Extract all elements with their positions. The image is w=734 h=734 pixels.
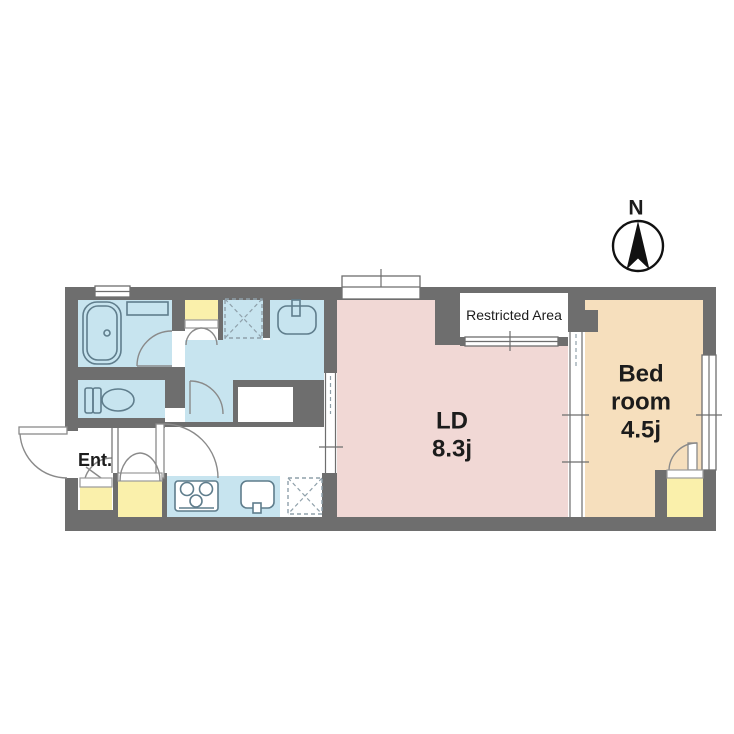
wall-stub-closet-laundry xyxy=(218,287,223,340)
bedroom-label-line2: room xyxy=(611,389,671,416)
floor-plan-drawing: Ent. Restricted Area LD 8.3j Bed room 4.… xyxy=(0,0,734,734)
wall-ld-bedroom-top xyxy=(568,287,585,332)
wall-bedroom-step xyxy=(585,310,598,332)
stove xyxy=(175,481,218,511)
hall-upper-closet-front xyxy=(185,320,218,328)
wall-bottom-entry-step xyxy=(65,510,118,519)
wall-ra-bottom-right xyxy=(558,337,568,346)
wall-pocket-left xyxy=(233,382,238,422)
wall-pocket-block xyxy=(293,387,324,422)
wall-pocket-top xyxy=(233,380,324,387)
wall-below-toilet xyxy=(65,418,165,428)
hallway-door-leaf xyxy=(156,424,164,478)
hallway-door-swing xyxy=(164,424,218,478)
wall-stub-laundry-basin xyxy=(263,287,270,338)
compass-north-label: N xyxy=(628,197,643,220)
compass: N xyxy=(613,197,663,272)
wall-washroom-front-edge xyxy=(165,422,325,427)
wall-kitchen-left xyxy=(162,473,167,517)
shoe-cabinet xyxy=(80,487,112,510)
wall-bottom xyxy=(65,517,716,531)
wall-ra-top-edge xyxy=(460,287,568,293)
entrance-door-opening xyxy=(63,431,79,478)
entrance-door-leaf xyxy=(19,427,67,434)
wall-bedroom-closet-left xyxy=(655,470,667,517)
ld-balcony-window xyxy=(342,269,420,299)
hallway-door xyxy=(156,424,218,478)
floor-plan-page: Ent. Restricted Area LD 8.3j Bed room 4.… xyxy=(0,0,734,734)
washroom-floor-band xyxy=(185,340,324,380)
wall-corridor-ld-upper xyxy=(324,287,337,373)
bedroom-closet-front xyxy=(667,470,703,478)
ld-size-label: 8.3j xyxy=(432,436,472,463)
wall-ld-top-chunk xyxy=(435,287,460,345)
toilet-door-opening xyxy=(165,408,185,418)
entrance-label: Ent. xyxy=(78,450,112,470)
bedroom-label-line1: Bed xyxy=(618,361,663,388)
entrance-door-swing xyxy=(20,434,67,478)
wall-corridor-ld-lower xyxy=(322,473,337,517)
refrigerator-space xyxy=(288,478,322,514)
wall-toilet-side xyxy=(165,378,185,408)
bedroom-size-label: 4.5j xyxy=(621,417,661,444)
ld-label: LD xyxy=(436,408,468,435)
wall-left xyxy=(65,287,78,531)
bedroom-closet xyxy=(667,478,703,517)
hall-lower-closet-front xyxy=(118,473,162,481)
kitchen-sink xyxy=(241,481,274,513)
restricted-area-label: Restricted Area xyxy=(466,307,562,323)
bathroom-vent-window xyxy=(95,286,130,297)
entrance-door xyxy=(19,427,67,478)
shoe-cabinet-front xyxy=(80,478,112,487)
entrance-step-edge xyxy=(112,428,118,473)
wall-closet2-left xyxy=(113,473,118,517)
hall-lower-closet xyxy=(118,481,162,517)
wall-bath-divider xyxy=(172,287,185,331)
hall-upper-closet xyxy=(185,300,218,320)
bathroom-door-opening xyxy=(172,331,185,367)
bedroom-closet-door-leaf xyxy=(688,443,697,470)
